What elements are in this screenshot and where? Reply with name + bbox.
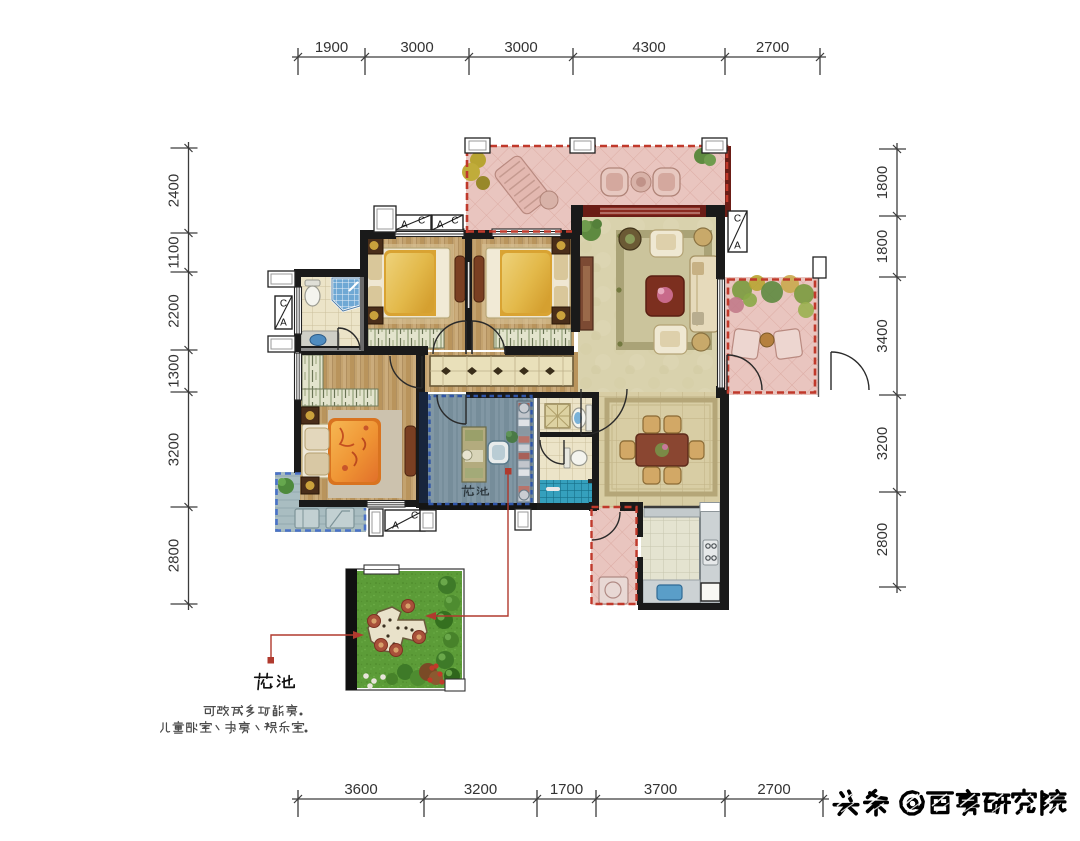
svg-text:3200: 3200 [166,433,183,466]
svg-text:C: C [411,511,418,522]
svg-text:C: C [280,299,287,310]
svg-text:1700: 1700 [550,781,583,798]
svg-text:3000: 3000 [504,39,537,56]
svg-text:A: A [437,220,444,231]
svg-text:3600: 3600 [344,781,377,798]
svg-text:3400: 3400 [874,319,891,352]
svg-text:A: A [392,521,399,532]
svg-text:2700: 2700 [756,39,789,56]
svg-text:A: A [734,241,741,252]
svg-text:1100: 1100 [166,236,183,268]
svg-text:2700: 2700 [757,781,790,798]
svg-text:C: C [451,216,458,227]
svg-text:C: C [734,214,741,225]
svg-text:A: A [280,318,287,329]
svg-text:1900: 1900 [315,39,348,56]
svg-text:1800: 1800 [874,166,891,199]
svg-text:3200: 3200 [874,427,891,460]
svg-text:C: C [418,216,425,227]
svg-text:1800: 1800 [874,230,891,263]
svg-text:4300: 4300 [632,39,665,56]
svg-text:A: A [401,220,408,231]
svg-text:3000: 3000 [400,39,433,56]
svg-text:3700: 3700 [644,781,677,798]
svg-text:2400: 2400 [166,174,183,207]
svg-text:2800: 2800 [874,523,891,556]
svg-text:2800: 2800 [166,539,183,572]
svg-text:3200: 3200 [464,781,497,798]
svg-text:1300: 1300 [166,354,183,387]
svg-text:2200: 2200 [166,294,183,327]
